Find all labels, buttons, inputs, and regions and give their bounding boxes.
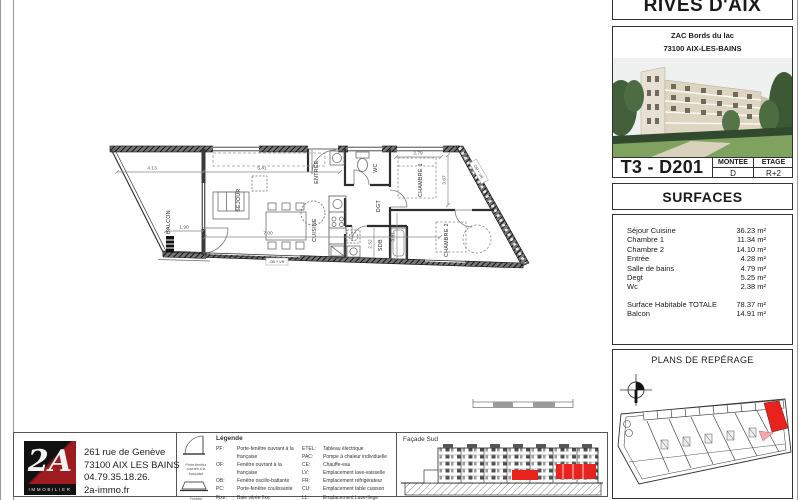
legend-label: Pompe à chaleur individuelle	[323, 453, 387, 461]
symbol-caption-1b: ouvrant à la française	[179, 467, 213, 476]
surface-value: 11.34 m²	[737, 235, 766, 244]
dim-3-67: 3.67	[442, 175, 448, 185]
agency-phone: 04.79.35.18.26.	[84, 472, 180, 485]
sidebar-title-box: RIVES D'AIX	[612, 0, 793, 20]
surfaces-header-box: SURFACES	[612, 183, 793, 210]
surface-total-value: 14.91 m²	[736, 309, 766, 318]
agency-logo-caption: IMMOBILIER	[24, 484, 76, 495]
legend-abbr: LL:	[302, 494, 323, 500]
dim-1-90: 1.90	[179, 225, 189, 231]
dim-7-00: 7.00	[263, 231, 273, 237]
drawing-sheet: 4.13 5.41 2.79 1.90 7.00 2.52 3.67 3.81 …	[0, 0, 800, 500]
surface-label: Chambre 1	[627, 235, 664, 244]
unit-etage-header: ETAGE	[754, 157, 793, 167]
surface-total-label: Surface Habitable TOTALE	[627, 300, 717, 309]
agency-logo-mark: 2A	[24, 441, 76, 484]
agency-website: 2a-immo.fr	[84, 485, 180, 498]
agency-logo-text: 2A	[24, 443, 76, 481]
legend-symbols: Porte-fenêtre ouvrant à la française Fen…	[179, 434, 213, 500]
agency-address: 261 rue de Genève 73100 AIX LES BAINS 04…	[84, 447, 180, 497]
agency-address-line1: 261 rue de Genève	[84, 447, 180, 460]
legend-abbr: PC:	[216, 485, 237, 493]
balcony-outline	[111, 149, 210, 261]
room-label-cuisine: CUISINE	[312, 218, 318, 242]
room-label-balcon: BALCON	[166, 210, 172, 234]
reperage-title: PLANS DE REPÉRAGE	[613, 355, 792, 365]
facade-highlight-unit	[556, 464, 596, 479]
legend-abbr: OF:	[216, 461, 237, 477]
unit-montee-value: D	[713, 168, 753, 178]
surface-value: 5.25 m²	[741, 273, 766, 282]
reperage-site-plan	[613, 366, 792, 498]
legend-label: Emplacement lave-vaisselle	[323, 469, 385, 477]
surface-row: Degt5.25 m²	[613, 273, 792, 282]
dim-3-81: 3.81	[391, 232, 397, 242]
door-symbols	[203, 150, 472, 253]
surface-label: Salle de bains	[627, 264, 674, 273]
surface-label: Séjour Cuisine	[627, 226, 676, 235]
agency-address-line2: 73100 AIX LES BAINS	[84, 460, 180, 473]
dim-4-13: 4.13	[147, 166, 157, 172]
agency-logo-band: IMMOBILIER	[24, 484, 76, 495]
legend-label: Fenêtre oscillo-battante	[237, 477, 289, 485]
surfaces-title: SURFACES	[662, 189, 742, 205]
room-label-sdb: SDB	[378, 239, 384, 251]
legend-block: Légende PF:Porte-fenêtre ouvrant à la fr…	[216, 435, 394, 500]
room-label-sejour: SEJOUR	[236, 188, 242, 211]
surface-value: 14.10 m²	[736, 245, 766, 254]
legend-abbr: LV:	[302, 469, 323, 477]
legend-label: Porte-fenêtre coulissante	[237, 485, 293, 493]
legend-label: Emplacement Lave-linge	[323, 494, 378, 500]
legend-label: Baie vitrée fixe	[237, 494, 270, 500]
surface-value: 2.38 m²	[741, 282, 766, 291]
legend-label: Emplacement réfrigérateur	[323, 477, 382, 485]
window-tag-bottom: OB + VR	[266, 258, 288, 265]
unit-label: T3 - D201	[612, 157, 712, 178]
legend-abbr: Fixe:	[216, 494, 237, 500]
dim-2-52: 2.52	[368, 239, 374, 249]
dim-2-79: 2.79	[413, 151, 423, 157]
legend-label: Fenêtre ouvrant à la française	[237, 461, 302, 477]
frame-right	[797, 0, 798, 500]
surface-value: 4.28 m²	[741, 254, 766, 263]
surface-label: Wc	[627, 282, 638, 291]
room-label-wc: WC	[373, 163, 379, 172]
room-label-dgt: DGT	[376, 199, 382, 212]
project-title: RIVES D'AIX	[613, 0, 792, 19]
legend-label: Porte-fenêtre ouvrant à la française	[237, 445, 302, 461]
surface-total-row: Balcon14.91 m²	[613, 309, 792, 318]
scale-bar	[473, 399, 573, 408]
surface-label: Degt	[627, 273, 643, 282]
legend-col2: ETEL:Tableau électrique PAC:Pompe à chal…	[302, 445, 394, 500]
surface-row: Séjour Cuisine36.23 m²	[613, 226, 792, 235]
legend-label: Emplacement table cuisson	[323, 485, 384, 493]
project-address-line2: 73100 AIX-LES-BAINS	[612, 44, 793, 53]
door-window-symbol-icon	[179, 434, 209, 458]
surface-row: Chambre 111.34 m²	[613, 235, 792, 244]
legend-abbr: PF:	[216, 445, 237, 461]
legend-abbr: FR:	[302, 477, 323, 485]
dimension-labels: 4.13 5.41 2.79 1.90 7.00 2.52 3.67 3.81	[147, 151, 447, 249]
window-tag-label: OB + VR	[269, 260, 284, 264]
surface-total-label: Balcon	[627, 309, 650, 318]
surfaces-list: Séjour Cuisine36.23 m² Chambre 111.34 m²…	[613, 226, 792, 319]
surface-row: Entrée4.28 m²	[613, 254, 792, 263]
room-label-chambre1: CHAMBRE 1	[418, 163, 424, 197]
surface-value: 4.79 m²	[741, 264, 766, 273]
legend-col1: PF:Porte-fenêtre ouvrant à la française …	[216, 445, 302, 500]
surface-label: Entrée	[627, 254, 649, 263]
legend-abbr: CU:	[302, 485, 323, 493]
bay-wall	[202, 149, 206, 255]
dim-5-41: 5.41	[257, 166, 267, 172]
legend-abbr: CE:	[302, 461, 323, 469]
surface-label: Chambre 2	[627, 245, 664, 254]
surface-row: Chambre 214.10 m²	[613, 245, 792, 254]
legend-label: Tableau électrique	[323, 445, 364, 453]
surfaces-list-box: Séjour Cuisine36.23 m² Chambre 111.34 m²…	[612, 214, 793, 345]
floor-plan: 4.13 5.41 2.79 1.90 7.00 2.52 3.67 3.81 …	[0, 0, 608, 432]
building-photo	[613, 58, 792, 157]
project-address-line1: ZAC Bords du lac	[612, 31, 793, 40]
facade-drawing	[397, 432, 607, 497]
agency-logo: 2A IMMOBILIER	[24, 441, 76, 495]
legend-title: Légende	[216, 435, 394, 442]
surface-value: 36.23 m²	[736, 226, 766, 235]
window-symbol-icon	[179, 479, 209, 492]
surface-total-value: 78.37 m²	[736, 300, 766, 309]
legend-label: Chauffe-eau	[323, 461, 350, 469]
room-label-entree: ENTREE	[314, 160, 320, 184]
surface-row: Wc2.38 m²	[613, 282, 792, 291]
legend-abbr: ETEL:	[302, 445, 323, 453]
surface-row: Salle de bains4.79 m²	[613, 264, 792, 273]
facade-highlight-small	[512, 470, 538, 480]
legend-abbr: OB:	[216, 477, 237, 485]
legend-abbr: PAC:	[302, 453, 323, 461]
room-label-chambre2: CHAMBRE 2	[444, 223, 450, 257]
unit-montee-header: MONTEE	[713, 157, 753, 167]
unit-etage-value: R+2	[754, 168, 793, 178]
surface-total-row: Surface Habitable TOTALE78.37 m²	[613, 300, 792, 309]
